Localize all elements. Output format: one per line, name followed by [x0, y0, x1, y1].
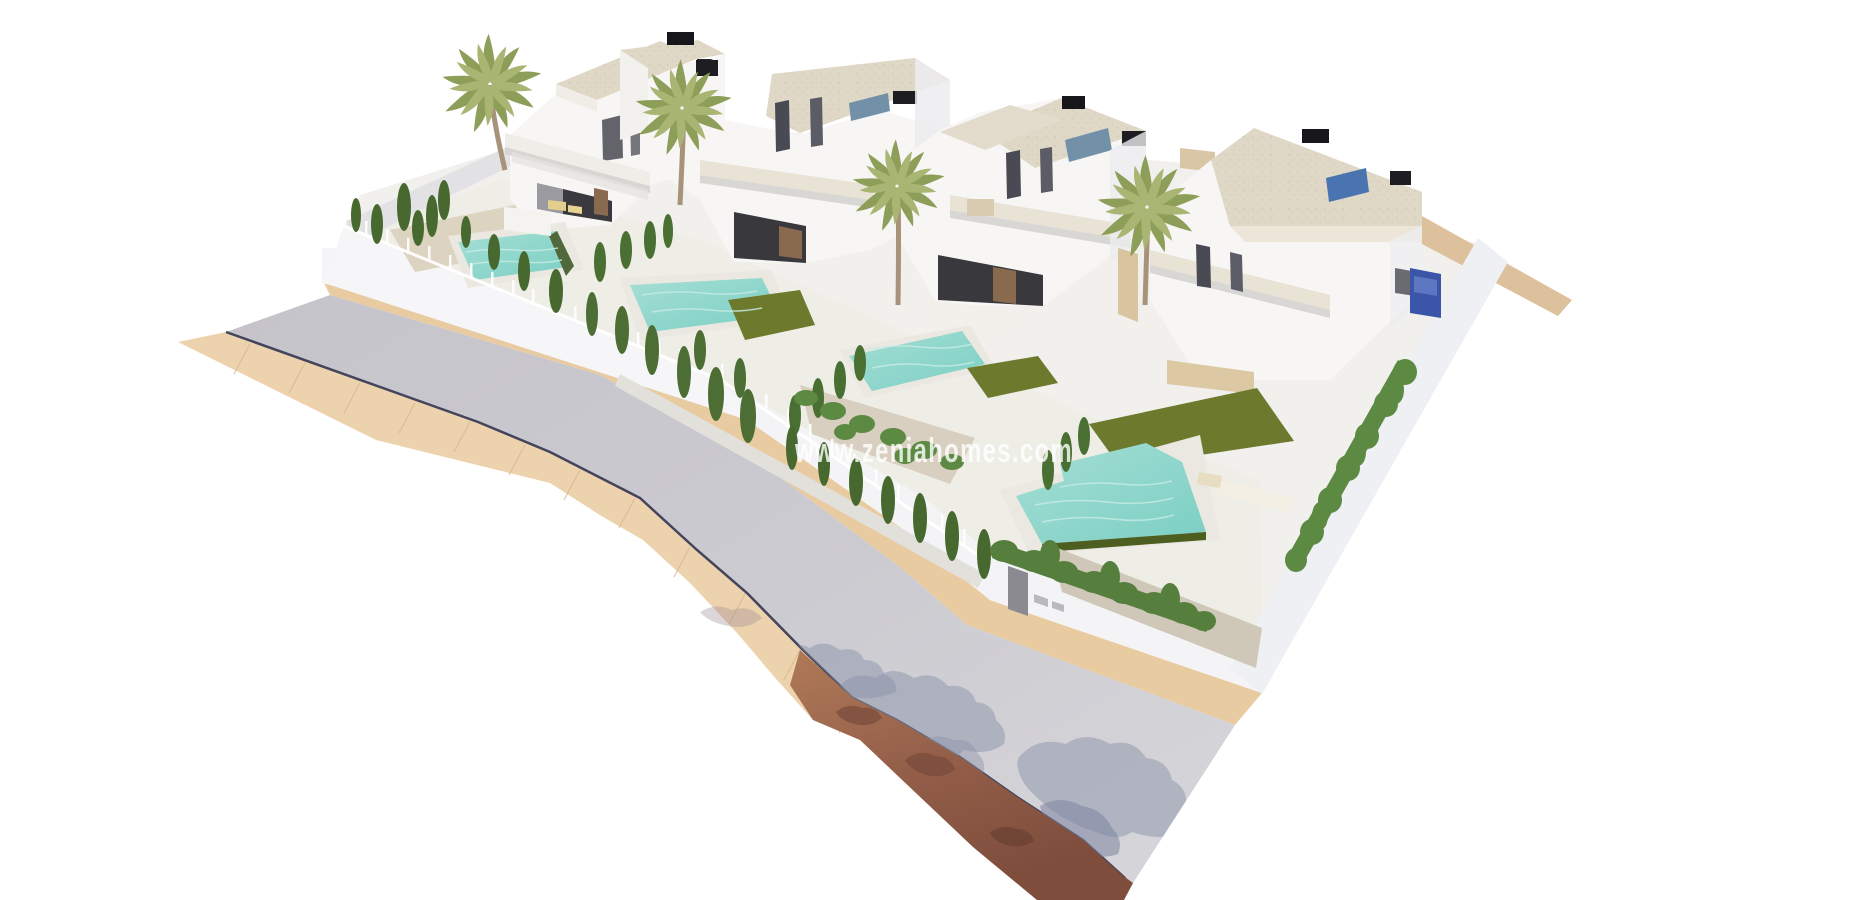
- svg-text:www.zeniahomes.com: www.zeniahomes.com: [794, 432, 1073, 470]
